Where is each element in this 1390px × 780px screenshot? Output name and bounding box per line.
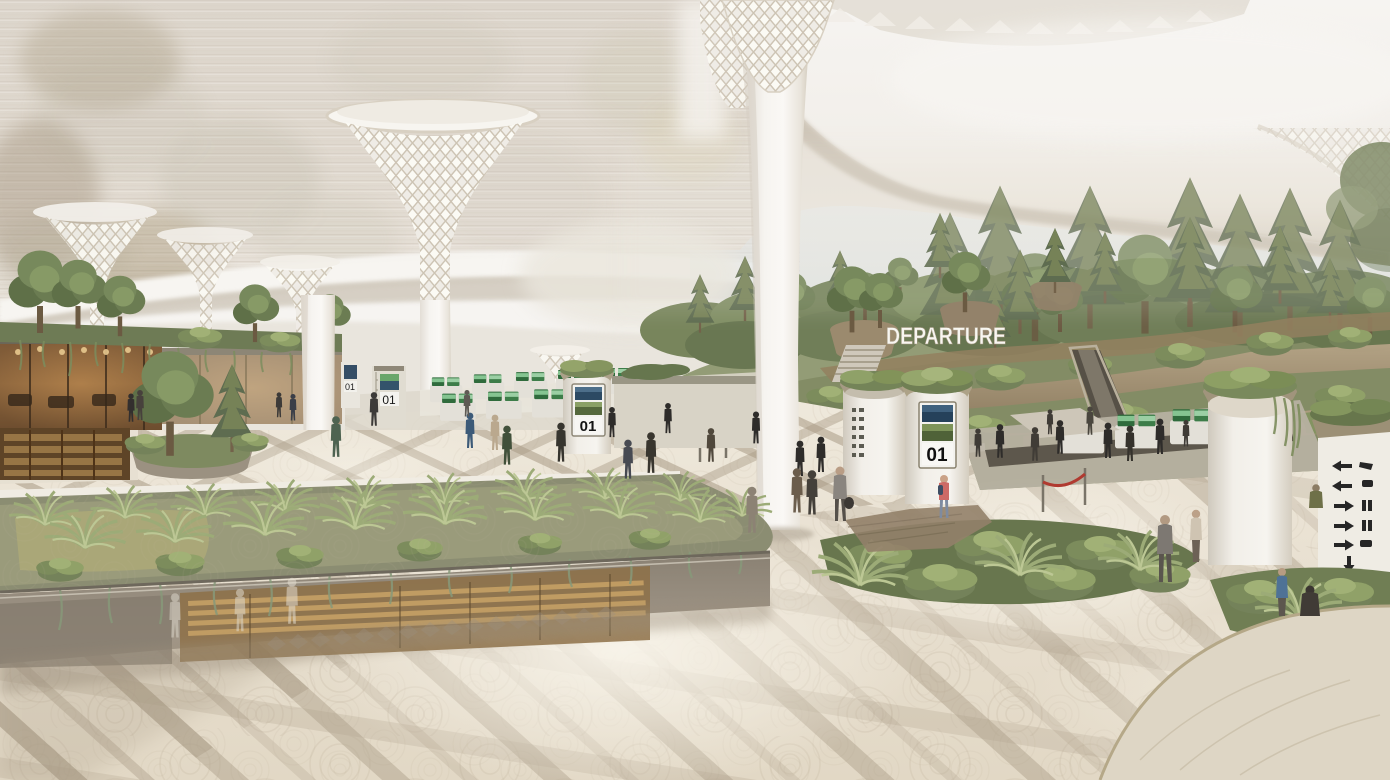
svg-text:01: 01 xyxy=(580,418,597,435)
svg-text:DEPARTURE: DEPARTURE xyxy=(886,323,1006,350)
svg-text:01: 01 xyxy=(926,445,948,466)
svg-text:01: 01 xyxy=(345,382,355,392)
svg-text:01: 01 xyxy=(382,393,396,407)
